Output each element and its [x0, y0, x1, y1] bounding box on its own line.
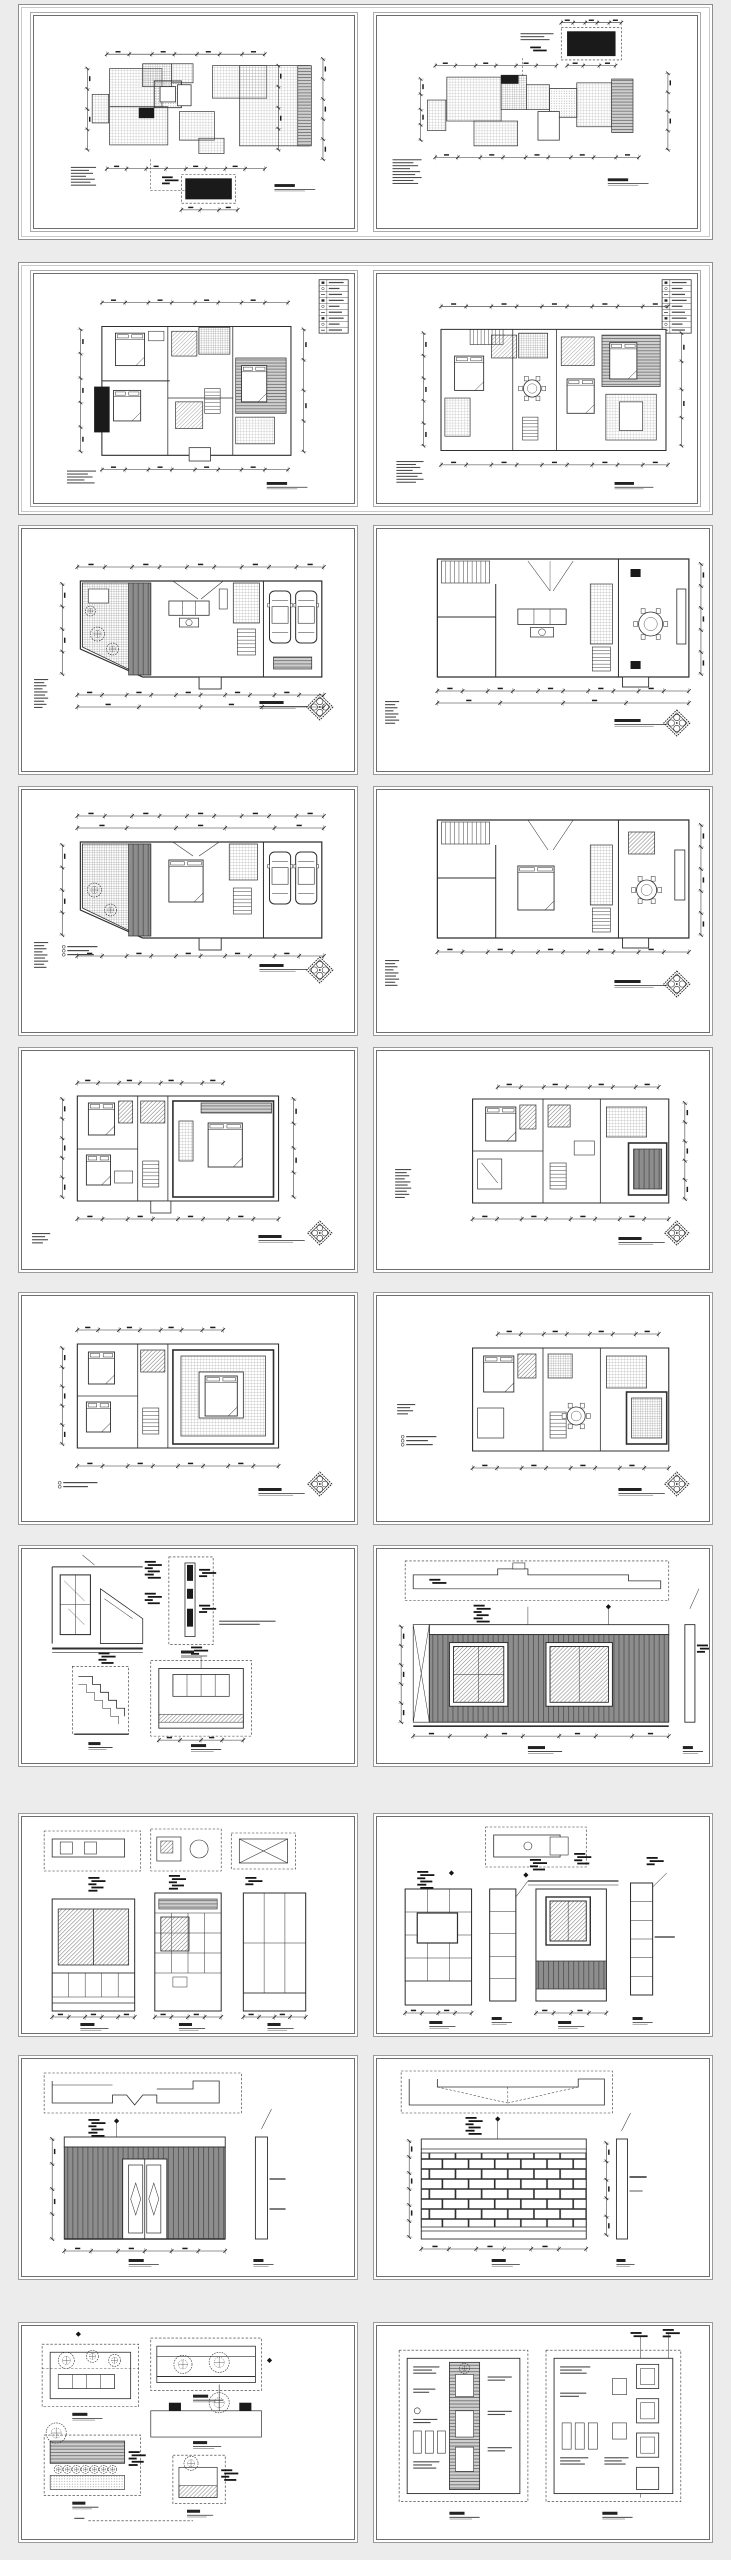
sheet-cabinet-elevations-a-canvas — [22, 1817, 354, 2033]
sheet-cabinet-elevations-b — [376, 1816, 710, 2034]
drawing-row-first-floor-plan-sheets — [18, 525, 713, 775]
sheet-brick-wall-canvas — [377, 2059, 709, 2276]
sheet-stair-window-details-frame — [18, 1545, 358, 1767]
sheet-planter-details — [21, 2325, 355, 2540]
sheet-apartment-plan-b2-canvas — [377, 1296, 709, 1521]
sheet-villa-plan-1f-right — [376, 528, 710, 772]
sheet-cabinet-elevations-a-frame — [18, 1813, 358, 2037]
sheet-slat-wall-elevation-frame — [373, 1545, 713, 1767]
drawing-row-ceiling-plan-sheets — [18, 4, 713, 240]
sheet-ceiling-plan-b-canvas — [377, 16, 697, 228]
sheet-apartment-plan-a1 — [21, 1050, 355, 1270]
sheet-villa-plan-2f-left-frame — [18, 786, 358, 1036]
sheet-cabinet-elevations-b-frame — [373, 1813, 713, 2037]
sheet-floor-plan-b-frame — [373, 270, 701, 507]
sheet-planter-details-canvas — [22, 2326, 354, 2539]
sheet-villa-plan-2f-right-frame — [373, 786, 713, 1036]
sheet-floor-plan-a-canvas — [34, 274, 354, 503]
sheet-villa-plan-2f-left — [21, 789, 355, 1033]
sheet-slat-door-wall — [21, 2058, 355, 2277]
sheet-panel-details-frame — [373, 2322, 713, 2543]
sheet-villa-plan-2f-right — [376, 789, 710, 1033]
drawing-row-apartment-plan-sheets-1 — [18, 1047, 713, 1273]
sheet-ceiling-plan-a — [33, 15, 355, 229]
sheet-apartment-plan-b2-frame — [373, 1292, 713, 1525]
sheet-slat-wall-elevation — [376, 1548, 710, 1764]
sheet-apartment-plan-a1-frame — [18, 1047, 358, 1273]
sheet-floor-plan-b-canvas — [377, 274, 697, 503]
sheet-apartment-plan-b1-frame — [373, 1047, 713, 1273]
sheet-brick-wall — [376, 2058, 710, 2277]
drawing-row-furniture-plan-sheets — [18, 262, 713, 515]
sheet-panel-details-canvas — [377, 2326, 709, 2539]
drawing-row-second-floor-plan-sheets — [18, 786, 713, 1036]
sheet-villa-plan-1f-left-canvas — [22, 529, 354, 771]
sheet-villa-plan-2f-left-canvas — [22, 790, 354, 1032]
sheet-planter-details-frame — [18, 2322, 358, 2543]
sheet-apartment-plan-a2-frame — [18, 1292, 358, 1525]
sheet-slat-door-wall-frame — [18, 2055, 358, 2280]
drawing-row-apartment-plan-sheets-2 — [18, 1292, 713, 1525]
sheet-apartment-plan-b1-canvas — [377, 1051, 709, 1269]
sheet-villa-plan-1f-left-frame — [18, 525, 358, 775]
sheet-ceiling-plan-b — [376, 15, 698, 229]
drawing-row-detail-elevation-sheets — [18, 1545, 713, 1767]
sheet-villa-plan-1f-right-canvas — [377, 529, 709, 771]
sheet-brick-wall-frame — [373, 2055, 713, 2280]
sheet-slat-wall-elevation-canvas — [377, 1549, 709, 1763]
sheet-slat-door-wall-canvas — [22, 2059, 354, 2276]
sheet-apartment-plan-b2 — [376, 1295, 710, 1522]
drawing-row-landscape-detail-sheets — [18, 2322, 713, 2543]
drawing-row-cabinet-elevation-sheets — [18, 1813, 713, 2037]
sheet-cabinet-elevations-a — [21, 1816, 355, 2034]
sheet-panel-details — [376, 2325, 710, 2540]
sheet-floor-plan-a — [33, 273, 355, 504]
sheet-ceiling-plan-a-frame — [30, 12, 358, 232]
sheet-cabinet-elevations-b-canvas — [377, 1817, 709, 2033]
sheet-stair-window-details — [21, 1548, 355, 1764]
sheet-villa-plan-2f-right-canvas — [377, 790, 709, 1032]
sheet-villa-plan-1f-left — [21, 528, 355, 772]
sheet-ceiling-plan-b-frame — [373, 12, 701, 232]
sheet-floor-plan-b — [376, 273, 698, 504]
sheet-villa-plan-1f-right-frame — [373, 525, 713, 775]
sheet-apartment-plan-a1-canvas — [22, 1051, 354, 1269]
sheet-ceiling-plan-a-canvas — [34, 16, 354, 228]
cad-drawing-collage — [0, 0, 731, 2560]
sheet-floor-plan-a-frame — [30, 270, 358, 507]
sheet-stair-window-details-canvas — [22, 1549, 354, 1763]
sheet-apartment-plan-b1 — [376, 1050, 710, 1270]
sheet-apartment-plan-a2 — [21, 1295, 355, 1522]
drawing-row-wall-elevation-sheets — [18, 2055, 713, 2280]
sheet-apartment-plan-a2-canvas — [22, 1296, 354, 1521]
